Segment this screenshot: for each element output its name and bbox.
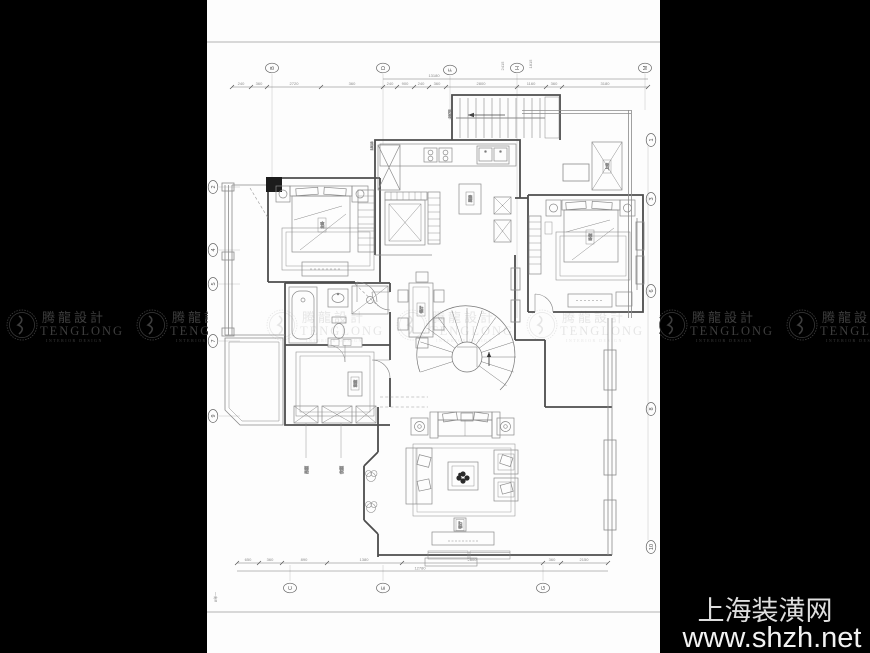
watermark-sub: INTERIOR DESIGN <box>46 338 103 343</box>
grid-bubble-label: H <box>515 66 521 70</box>
dim-note: 1815 <box>528 59 533 69</box>
dim-label: 360 <box>256 81 263 86</box>
dim-label: 1380 <box>360 557 370 562</box>
drawing-svg: 腾龍設計 TENGLONG INTERIOR DESIGN 腾龍設計 TENGL… <box>0 0 870 653</box>
watermark-cn: 腾龍設計 <box>42 310 106 325</box>
watermark-en: TENGLONG <box>430 324 514 338</box>
dim-label: 360 <box>549 557 556 562</box>
watermark-sub: INTERIOR DESIGN <box>566 338 623 343</box>
dim-total-label: 12780 <box>414 566 426 571</box>
dim-label: 2150 <box>580 557 590 562</box>
grid-bubble-label: D <box>381 66 387 70</box>
wall-note: 1818 <box>369 141 374 151</box>
dim-label: 650 <box>245 557 252 562</box>
dim-label: 360 <box>551 81 558 86</box>
dim-label: 3180 <box>601 81 611 86</box>
watermark-logo: 腾龍設計 TENGLONG INTERIOR DESIGN <box>787 310 870 343</box>
sheet-note: 8单一 <box>212 592 218 602</box>
site-url-text: www.shzh.net <box>682 622 862 653</box>
dim-total-label: 13180 <box>428 73 440 78</box>
dim-label: 2720 <box>290 81 300 86</box>
dim-label: 360 <box>267 557 274 562</box>
room-label-tatami: 和室 <box>353 380 358 388</box>
watermark-logo: 腾龍設計 TENGLONG INTERIOR DESIGN <box>7 310 124 343</box>
site-watermark: 上海装潢网 www.shzh.net <box>682 596 862 653</box>
dim-label: 240 <box>387 81 394 86</box>
dim-label: 240 <box>238 81 245 86</box>
grid-bubble-label: 2 <box>211 185 217 188</box>
watermark-sub: INTERIOR DESIGN <box>696 338 753 343</box>
dim-label: 890 <box>301 557 308 562</box>
dim-label: 2800 <box>477 81 487 86</box>
grid-bubble-label: 6 <box>649 289 655 292</box>
room-label-dining: 餐厅 <box>419 306 424 314</box>
grid-bubble-label: E <box>381 586 387 590</box>
watermark-en: TENGLONG <box>40 324 124 338</box>
watermark-cn: 腾龍設計 <box>822 310 870 325</box>
grid-bubble-label: 10 <box>649 544 655 550</box>
room-label-void: 上空 <box>605 163 610 171</box>
dim-label: 900 <box>402 81 409 86</box>
callout-closet-a: 吊柜 <box>303 466 309 474</box>
watermark-sub: INTERIOR DESIGN <box>826 338 870 343</box>
grid-bubble-label: 1 <box>649 138 655 141</box>
watermark-sub: INTERIOR DESIGN <box>306 338 363 343</box>
watermark-faint-row: 腾龍設計 TENGLONG INTERIOR DESIGN 腾龍設計 TENGL… <box>267 310 644 343</box>
room-label-master: 主卧 <box>320 221 325 229</box>
room-label-bedroom: 卧室 <box>588 233 593 241</box>
dim-label: 360 <box>349 81 356 86</box>
watermark-cn: 腾龍設計 <box>692 310 756 325</box>
dim-note: 2415 <box>500 61 505 71</box>
watermark-logo: 腾龍設計 TENGLONG INTERIOR DESIGN <box>657 310 774 343</box>
watermark-en: TENGLONG <box>560 324 644 338</box>
room-label-living: 客厅 <box>458 521 463 529</box>
dim-label: 1160 <box>527 81 536 86</box>
grid-bubble-label: 9 <box>211 414 217 417</box>
grid-bubble-label: B <box>270 66 276 70</box>
grid-bubble-label: 8 <box>649 407 655 410</box>
dim-label: 240 <box>418 81 425 86</box>
grid-bubble-label: 4 <box>211 248 217 251</box>
callout-closet-b: 衣柜 <box>338 466 344 474</box>
grid-bubble-label: G <box>541 586 547 590</box>
grid-bubble-label: 3 <box>649 197 655 200</box>
watermark-en: TENGLONG <box>690 324 774 338</box>
dim-label: 360 <box>434 81 441 86</box>
watermark-en: TENGLONG <box>820 324 870 338</box>
grid-bubble-label: C <box>288 586 294 590</box>
stair-note: 2975 <box>447 109 452 119</box>
floorplan-screenshot: 腾龍設計 TENGLONG INTERIOR DESIGN 腾龍設計 TENGL… <box>0 0 870 653</box>
structural-column <box>266 177 282 192</box>
grid-bubble-label: 7 <box>211 339 217 342</box>
grid-bubble-label: 5 <box>211 282 217 285</box>
grid-bubble-label: M <box>643 65 649 70</box>
room-label-kitchen: 厨房 <box>468 195 473 203</box>
